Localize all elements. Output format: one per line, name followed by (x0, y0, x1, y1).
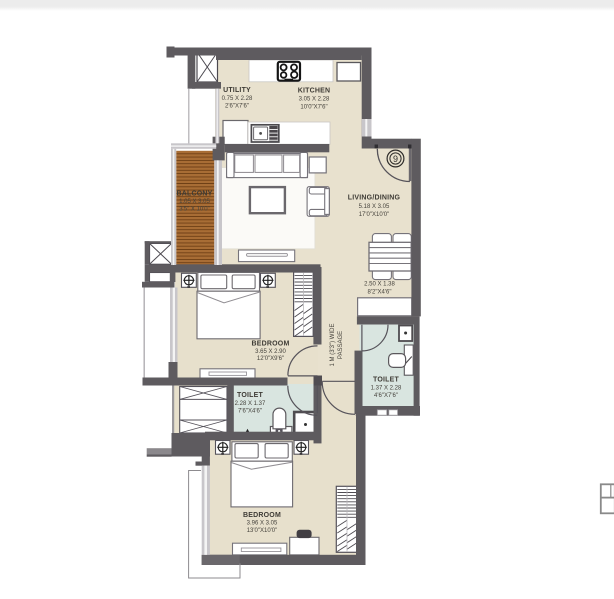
svg-text:13'0"X10'0": 13'0"X10'0" (247, 528, 278, 534)
svg-text:2.28 X 1.37: 2.28 X 1.37 (235, 401, 266, 407)
svg-text:BEDROOM: BEDROOM (252, 341, 290, 348)
svg-text:KITCHEN: KITCHEN (298, 88, 331, 95)
svg-text:1.37 X 2.28: 1.37 X 2.28 (371, 386, 402, 392)
svg-text:17'0"X10'0": 17'0"X10'0" (359, 212, 390, 218)
svg-text:5.18 X 3.05: 5.18 X 3.05 (359, 204, 390, 210)
svg-text:BEDROOM: BEDROOM (243, 512, 281, 519)
svg-text:7'6"X4'6": 7'6"X4'6" (238, 409, 262, 415)
svg-text:2'6"X7'6": 2'6"X7'6" (225, 104, 249, 110)
svg-text:9: 9 (393, 154, 398, 164)
svg-text:1.05 X 3.05: 1.05 X 3.05 (179, 199, 210, 205)
svg-text:8'2"X4'6": 8'2"X4'6" (368, 290, 392, 296)
svg-text:0.75 X 2.28: 0.75 X 2.28 (222, 96, 253, 102)
svg-text:PASSAGE: PASSAGE (338, 331, 344, 359)
svg-text:BALCONY: BALCONY (176, 191, 212, 198)
svg-text:3.05 X 2.28: 3.05 X 2.28 (299, 97, 330, 103)
svg-text:TOILET: TOILET (237, 392, 263, 399)
svg-text:2.50 X 1.38: 2.50 X 1.38 (364, 282, 395, 288)
svg-text:TOILET: TOILET (373, 377, 399, 384)
svg-text:3.96 X 3.05: 3.96 X 3.05 (247, 521, 278, 527)
svg-text:10'0"X7'6": 10'0"X7'6" (300, 105, 327, 111)
svg-text:3.65 X 2.90: 3.65 X 2.90 (255, 349, 286, 355)
svg-text:UTILITY: UTILITY (223, 87, 251, 94)
svg-text:3'5" X 10'0": 3'5" X 10'0" (179, 207, 210, 213)
svg-text:12'0"X9'6": 12'0"X9'6" (257, 356, 284, 362)
svg-text:1 M (3'3") WIDE: 1 M (3'3") WIDE (330, 324, 336, 367)
svg-text:4'6"X7'6": 4'6"X7'6" (374, 393, 398, 399)
svg-text:LIVING/DINING: LIVING/DINING (348, 195, 401, 202)
